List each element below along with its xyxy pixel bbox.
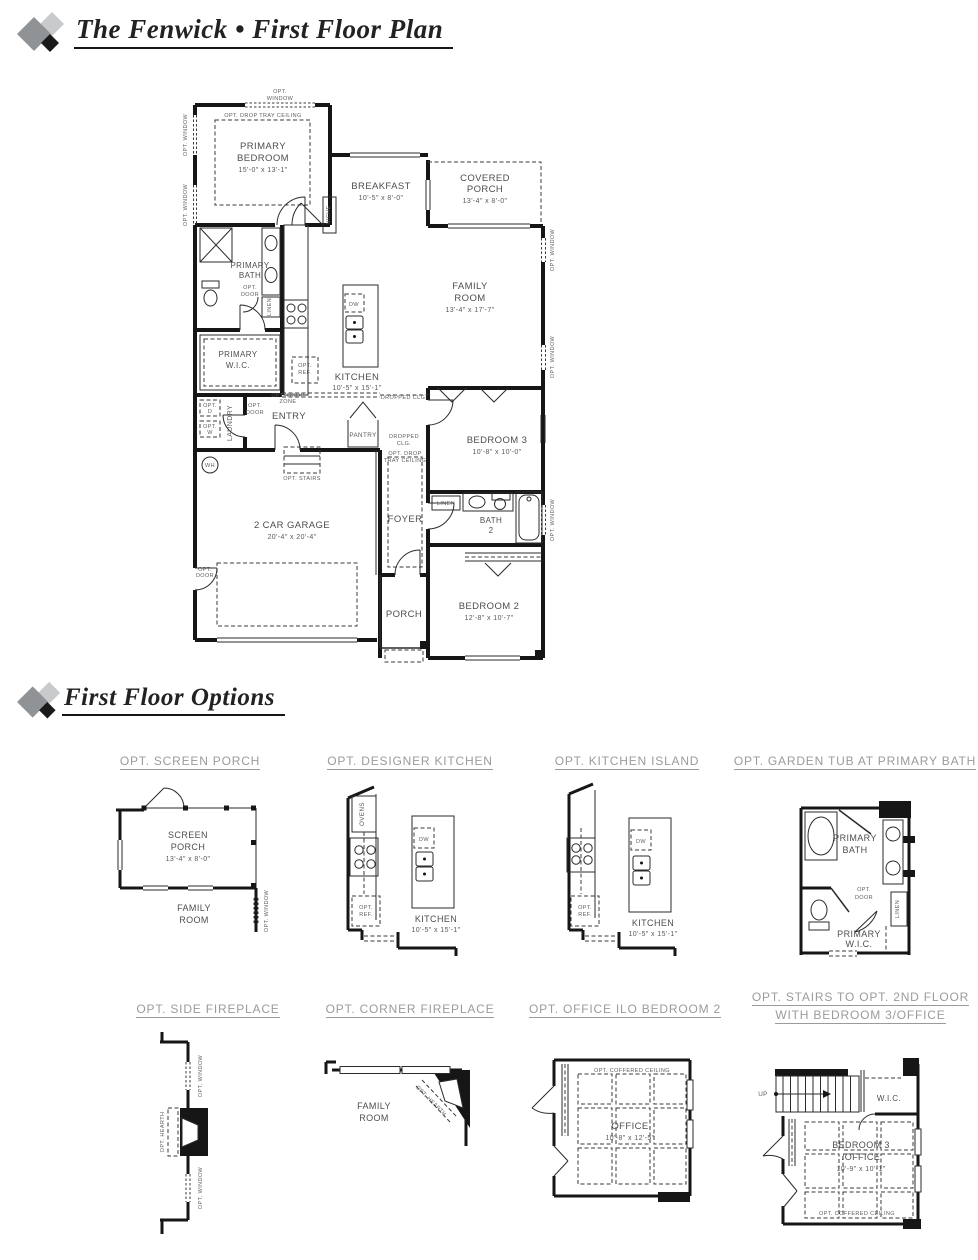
opt-window-right1: OPT. WINDOW — [550, 228, 556, 271]
opt-ref-dk2: REF. — [359, 912, 373, 918]
floor-plan-page: The Fenwick • First Floor Plan — [0, 0, 978, 1260]
diamond-logo-icon-2 — [14, 680, 66, 724]
opt-window-top-label: OPT. — [273, 89, 287, 95]
foyer-tray-label2: TRAY CEILING — [384, 458, 427, 464]
breakfast-dims: 10'-5" x 8'-0" — [359, 195, 404, 202]
foyer-label: FOYER — [388, 514, 423, 525]
entry-label: ENTRY — [272, 411, 306, 422]
bedroom3-office-dims: 10'-9" x 10'-1" — [836, 1166, 885, 1173]
option-stairs-2nd-floor: OPT. STAIRS TO OPT. 2ND FLOOR WITH BEDRO… — [743, 988, 978, 1239]
dropped-clg2-label: DROPPED — [389, 434, 419, 440]
option-garden-tub-drawing: PRIMARY BATH OPT. DOOR LINEN PRIMARY W.I… — [731, 780, 978, 965]
wh-label: WH — [205, 463, 215, 469]
option-garden-tub-heading: OPT. GARDEN TUB AT PRIMARY BATH — [734, 754, 976, 770]
family-room-label: FAMILY — [452, 281, 488, 292]
page-title: The Fenwick • First Floor Plan — [74, 14, 453, 49]
option-stairs-drawing: UP W.I.C. BEDROOM 3 /OFFICE 10'-9" x 10'… — [743, 1034, 978, 1239]
opt-drop-zone-label2: ZONE — [280, 399, 297, 405]
niche-label: NICHE — [326, 205, 332, 224]
option-designer-kitchen-drawing: OVENS OPT. REF. DW KITCHEN 10'-5" x 15'-… — [316, 780, 504, 965]
gt-opt-door: OPT. — [857, 887, 871, 893]
bath2-label: BATH — [480, 516, 502, 525]
opt-window-sp: OPT. WINDOW — [264, 889, 270, 932]
dw-dk: DW — [419, 837, 429, 843]
gt-primary-bath-label2: BATH — [843, 845, 868, 855]
foyer-tray-label: OPT. DROP — [388, 451, 421, 457]
porch-label: PORCH — [386, 609, 422, 620]
plan-labels: OPT. WINDOW OPT. WINDOW OPT. WINDOW OPT.… — [183, 89, 556, 622]
bath2-label2: 2 — [489, 526, 494, 535]
screen-porch-dims: 13'-4" x 8'-0" — [166, 856, 211, 863]
option-office-heading: OPT. OFFICE ILO BEDROOM 2 — [529, 1002, 721, 1018]
opt-w-label2: W — [207, 430, 213, 436]
opt-ref-label2: REF. — [298, 370, 312, 376]
bedroom3-dims: 10'-8" x 10'-0" — [472, 449, 521, 456]
option-kitchen-island-drawing: OPT. REF. DW KITCHEN 10'-5" x 15'-1" — [541, 780, 713, 965]
screen-porch-label: SCREEN — [168, 830, 208, 840]
screen-porch-label2: PORCH — [171, 842, 206, 852]
opt-door-garage-label2: DOOR — [196, 573, 214, 579]
up-label: UP — [758, 1091, 768, 1098]
bedroom2-label: BEDROOM 2 — [459, 601, 520, 612]
primary-wic-label2: W.I.C. — [226, 361, 250, 370]
bedroom3-label: BEDROOM 3 — [467, 435, 528, 446]
opt-ref-label: OPT. — [298, 363, 312, 369]
office-dims: 10'-8" x 12'-5" — [605, 1135, 654, 1142]
gt-opt-door2: DOOR — [855, 895, 873, 901]
option-screen-porch-drawing: SCREEN PORCH 13'-4" x 8'-0" FAMILY ROOM … — [88, 780, 292, 950]
opt-door-laundry-label: OPT. — [248, 403, 262, 409]
bedroom2-dims: 12'-8" x 10'-7" — [464, 615, 513, 622]
option-designer-kitchen: OPT. DESIGNER KITCHEN OVENS OPT. REF. DW… — [316, 752, 504, 965]
wic-label: W.I.C. — [877, 1094, 901, 1103]
option-side-fireplace: OPT. SIDE FIREPLACE OPT. WINDOW OPT. HEA… — [112, 1000, 304, 1243]
opt-window-bath2: OPT. WINDOW — [550, 498, 556, 541]
garage-label: 2 CAR GARAGE — [254, 520, 330, 531]
linen-label: LINEN — [267, 298, 273, 316]
option-corner-fireplace-drawing: OPT. HEARTH FAMILY ROOM — [312, 1028, 508, 1158]
dw-label: DW — [349, 302, 359, 308]
option-corner-fireplace: OPT. CORNER FIREPLACE OPT. HEARTH FAMILY… — [312, 1000, 508, 1158]
family-room-label2: ROOM — [454, 293, 485, 304]
covered-porch-label2: PORCH — [467, 184, 503, 195]
opt-window-top-label2: WINDOW — [267, 96, 294, 102]
family-room-ref-label2: ROOM — [179, 915, 209, 925]
primary-bath-label: PRIMARY — [230, 261, 269, 270]
opt-stairs-label: OPT. STAIRS — [283, 476, 321, 482]
opt-d-label2: D — [208, 409, 212, 415]
option-kitchen-island-heading: OPT. KITCHEN ISLAND — [555, 754, 700, 770]
stairs-coffered-label: OPT. COFFERED CEILING — [819, 1211, 895, 1217]
dw-ki: DW — [636, 839, 646, 845]
option-corner-fireplace-heading: OPT. CORNER FIREPLACE — [326, 1002, 495, 1018]
opt-drop-tray-label: OPT. DROP TRAY CEILING — [224, 113, 301, 119]
dropped-clg-label: DROPPED CLG. — [381, 395, 427, 401]
kitchen-dims: 10'-5" x 15'-1" — [332, 385, 381, 392]
primary-bedroom-dims: 15'-0" x 13'-1" — [238, 167, 287, 174]
first-floor-plan-drawing: OPT. WINDOW OPT. WINDOW OPT. WINDOW OPT.… — [180, 85, 578, 675]
option-office-drawing: OPT. COFFERED CEILING OFFICE 10'-8" x 12… — [518, 1028, 732, 1213]
garage-dims: 20'-4" x 20'-4" — [267, 534, 316, 541]
opt-window-right2: OPT. WINDOW — [550, 335, 556, 378]
primary-wic-label: PRIMARY — [218, 350, 257, 359]
options-title: First Floor Options — [62, 684, 285, 716]
covered-porch-dims: 13'-4" x 8'-0" — [463, 198, 508, 205]
option-stairs-heading: OPT. STAIRS TO OPT. 2ND FLOOR — [752, 990, 969, 1006]
opt-window-left1: OPT. WINDOW — [183, 113, 189, 156]
gt-wic-label: PRIMARY — [837, 929, 881, 939]
linen2-label: LINEN — [437, 501, 455, 507]
opt-door-bath-label: OPT. — [243, 285, 257, 291]
family-room-ref-label: FAMILY — [177, 903, 211, 913]
option-side-fireplace-drawing: OPT. WINDOW OPT. HEARTH OPT. WINDOW — [112, 1028, 304, 1243]
opt-window-left2: OPT. WINDOW — [183, 183, 189, 226]
cf-family-label: FAMILY — [357, 1101, 391, 1111]
dropped-clg2-label2: CLG. — [397, 441, 412, 447]
gt-linen: LINEN — [895, 900, 901, 918]
breakfast-label: BREAKFAST — [351, 181, 411, 192]
laundry-label: LAUNDRY — [227, 405, 234, 441]
opt-door-laundry-label2: DOOR — [246, 410, 264, 416]
kitchen-dk-label: KITCHEN — [415, 914, 457, 924]
diamond-logo-icon — [14, 10, 70, 58]
sf-opt-hearth: OPT. HEARTH — [160, 1112, 166, 1153]
opt-ref-dk: OPT. — [359, 905, 373, 911]
opt-door-bath-label2: DOOR — [241, 292, 259, 298]
kitchen-ki-label: KITCHEN — [632, 918, 674, 928]
pantry-label: PANTRY — [349, 432, 377, 439]
cf-family-label2: ROOM — [359, 1113, 389, 1123]
kitchen-label: KITCHEN — [335, 372, 380, 383]
gt-wic-label2: W.I.C. — [846, 939, 873, 949]
sf-opt-window2: OPT. WINDOW — [198, 1166, 204, 1209]
primary-bedroom-label: PRIMARY — [240, 141, 286, 152]
option-screen-porch-heading: OPT. SCREEN PORCH — [120, 754, 260, 770]
kitchen-dk-dims: 10'-5" x 15'-1" — [411, 927, 460, 934]
covered-porch-label: COVERED — [460, 173, 510, 184]
bedroom3-office-label2: /OFFICE — [842, 1152, 880, 1162]
bedroom3-office-label: BEDROOM 3 — [832, 1140, 890, 1150]
primary-bedroom-label2: BEDROOM — [237, 153, 289, 164]
option-garden-tub: OPT. GARDEN TUB AT PRIMARY BATH PRIMARY … — [731, 752, 978, 965]
ovens-label: OVENS — [359, 802, 366, 826]
primary-bath-label2: BATH — [239, 271, 261, 280]
option-office: OPT. OFFICE ILO BEDROOM 2 OPT. COFFERED … — [518, 1000, 732, 1213]
option-stairs-heading2: WITH BEDROOM 3/OFFICE — [775, 1008, 945, 1024]
kitchen-ki-dims: 10'-5" x 15'-1" — [628, 931, 677, 938]
option-side-fireplace-heading: OPT. SIDE FIREPLACE — [136, 1002, 279, 1018]
sf-opt-window1: OPT. WINDOW — [198, 1054, 204, 1097]
office-coffered-label: OPT. COFFERED CEILING — [594, 1068, 670, 1074]
opt-ref-ki2: REF. — [578, 912, 592, 918]
option-designer-kitchen-heading: OPT. DESIGNER KITCHEN — [327, 754, 493, 770]
option-screen-porch: OPT. SCREEN PORCH SCREEN PORCH 13'-4" x … — [88, 752, 292, 950]
office-label: OFFICE — [611, 1121, 648, 1132]
family-room-dims: 13'-4" x 17'-7" — [445, 307, 494, 314]
opt-ref-ki: OPT. — [578, 905, 592, 911]
option-kitchen-island: OPT. KITCHEN ISLAND OPT. REF. DW KITCHEN… — [541, 752, 713, 965]
gt-primary-bath-label: PRIMARY — [833, 833, 877, 843]
